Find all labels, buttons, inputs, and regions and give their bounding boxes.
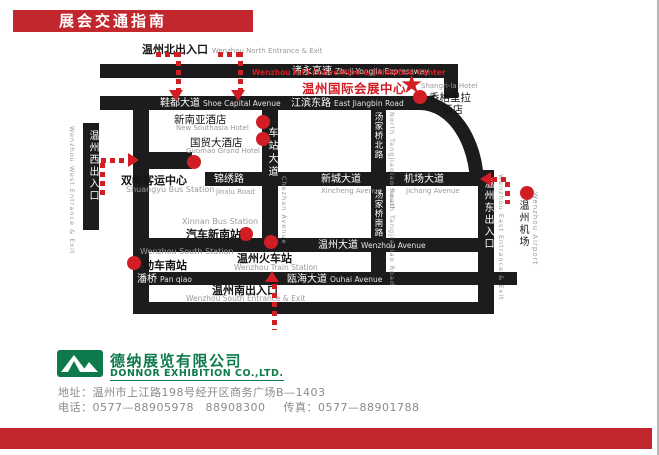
route-arrow-west-head xyxy=(128,153,139,167)
label-jichang: 机场大道 xyxy=(404,174,444,185)
route-arrow-north1-v xyxy=(176,52,181,92)
label-xinnan-zh: 汽车新南站 xyxy=(186,226,241,242)
label-xincheng: 新城大道 xyxy=(321,174,361,185)
company-phone: 电话：0577—88905978 88908300 xyxy=(58,401,265,414)
route-arrow-north2-v xyxy=(238,52,243,92)
label-south-station-en: Wenzhou South Station xyxy=(140,247,233,256)
exhibition-traffic-guide-page: 展会交通指南 诸永高速Zhuji-Yongjia Expressway 鞋都大道… xyxy=(0,0,659,455)
poi-dot-shuangyu xyxy=(187,155,201,169)
label-west-entrance-en: Wenzhou West Entrance & Exit xyxy=(68,126,76,255)
label-south-entrance-en: Wenzhou South Entrance & Exit xyxy=(186,294,305,303)
label-jinxiu: 锦绣路 xyxy=(214,174,244,185)
company-fax: 传真：0577—88901788 xyxy=(283,401,419,414)
label-jiangbin: 江滨东路East Jiangbin Road xyxy=(291,98,404,109)
page-title: 展会交通指南 xyxy=(13,10,253,32)
label-airport-en: Wenzhou Airport xyxy=(531,192,539,265)
company-name-en: DONNOR EXHIBITION CO.,LTD. xyxy=(110,368,284,381)
title-banner: 展会交通指南 xyxy=(13,10,253,32)
road-bottom xyxy=(133,302,494,314)
label-airport-zh: 温州机场 xyxy=(515,200,530,248)
label-shuangyu-en: Shuangyu Bus Station xyxy=(126,185,214,194)
route-arrow-north2-head xyxy=(231,90,245,101)
label-jichang-en: Jichang Avenue xyxy=(406,187,460,195)
label-tangjiaqiao-south: 汤家桥南路 xyxy=(372,190,384,238)
label-guomao-en: Guomao Grand Hotel xyxy=(186,147,260,155)
poi-dot-xinnan xyxy=(239,227,253,241)
poi-dot-guomao xyxy=(256,132,270,146)
poi-dot-train-station xyxy=(264,235,278,249)
label-xinnan-en: Xinnan Bus Station xyxy=(182,217,258,226)
company-address: 地址：温州市上江路198号经开区商务广场B—1403 xyxy=(58,384,326,400)
label-west-entrance: 温州西出入口 xyxy=(85,130,100,202)
label-ouhai: 瓯海大道Ouhai Avenue xyxy=(287,274,382,285)
label-center-zh: 温州国际会展中心 xyxy=(302,78,406,97)
label-panqiao: 潘桥Pan qiao xyxy=(137,274,192,285)
company-logo xyxy=(57,350,103,378)
label-tangjiaqiao-south-en: South Tangjiaqiao Road xyxy=(388,188,396,286)
label-new-southasia-en: New Southasia Hotel xyxy=(176,124,249,132)
label-chezhan-en: Chezhan Avenue xyxy=(280,176,288,245)
route-arrow-west-h xyxy=(101,158,128,163)
label-shangri-la-en: Shangri-la Hotel xyxy=(421,82,477,90)
route-arrow-north1-head xyxy=(169,90,183,101)
label-tangjiaqiao-north: 汤家桥北路 xyxy=(372,112,384,160)
route-arrow-east-head xyxy=(480,172,491,186)
route-arrow-west-v xyxy=(100,163,105,197)
route-arrow-south-head xyxy=(265,271,279,282)
poi-dot-new-southasia xyxy=(256,115,270,129)
label-east-entrance: 温州东出入口 xyxy=(480,178,495,250)
route-arrow-south-v xyxy=(272,284,277,330)
route-arrow-east-v xyxy=(505,182,510,204)
label-wenzhou-avenue: 温州大道Wenzhou Avenue xyxy=(318,240,426,251)
footer-bar xyxy=(0,428,652,449)
company-contact: 电话：0577—88905978 88908300 传真：0577—889017… xyxy=(58,399,419,415)
label-shangri-la-zh2: 酒店 xyxy=(442,102,463,117)
label-south-station-zh: 动车南站 xyxy=(143,257,187,273)
poi-dot-shangri-la xyxy=(413,90,427,104)
poi-dot-south-station xyxy=(127,256,141,270)
label-jinxiu-en: Jinxiu Road xyxy=(216,188,255,196)
label-east-entrance-en: Wenzhou East Entrance & Exit xyxy=(497,174,505,301)
